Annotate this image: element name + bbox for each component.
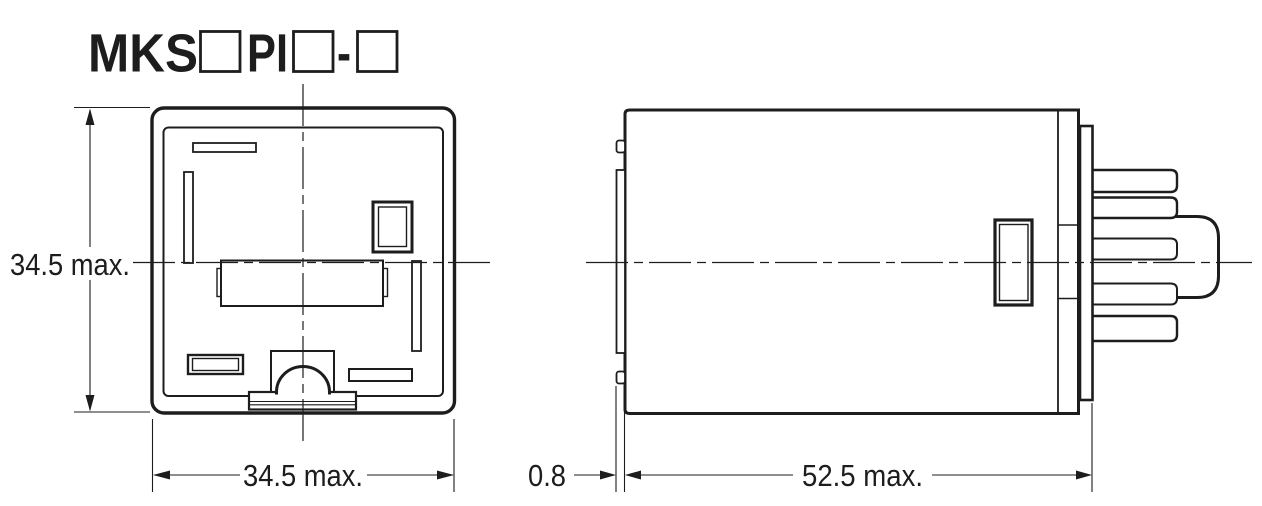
side-front-flange: [617, 170, 626, 353]
flange-dimension-label: 0.8: [528, 458, 566, 493]
height-dimension-label: 34.5 max.: [10, 247, 130, 282]
side-pin-2: [1092, 198, 1177, 219]
model-mid-text: PI: [247, 24, 288, 84]
front-height-dimension: 34.5 max.: [10, 108, 150, 413]
arrowhead-flange: [600, 471, 616, 480]
side-pin-5: [1092, 316, 1177, 341]
model-option-box-3: [358, 32, 398, 72]
model-option-box-2: [294, 32, 334, 72]
side-pin-1: [1092, 170, 1177, 192]
depth-dimension-label: 52.5 max.: [802, 458, 923, 493]
arrowhead-left: [153, 471, 170, 480]
width-dimension-label: 34.5 max.: [243, 458, 363, 493]
model-title: MKS PI -: [88, 24, 397, 84]
side-pin-3: [1092, 239, 1177, 260]
model-option-box-1: [201, 32, 241, 72]
arrowhead-depth-right: [1076, 471, 1092, 480]
front-view: [133, 84, 492, 441]
relay-dimension-drawing: MKS PI -: [0, 0, 1262, 506]
side-flange-bottom-tab: [617, 372, 626, 384]
arrowhead-up: [86, 109, 95, 126]
dimension-drawing-page: MKS PI -: [0, 0, 1262, 506]
side-depth-dimension: 52.5 max.: [625, 403, 1092, 493]
model-separator-text: -: [337, 24, 351, 84]
side-flange-top-tab: [617, 141, 626, 153]
side-view: [586, 110, 1252, 414]
side-pin-4: [1092, 284, 1177, 305]
arrowhead-right: [437, 471, 454, 480]
side-flange-dimension: 0.8: [528, 386, 625, 493]
front-label-plate: [221, 261, 383, 307]
arrowhead-depth-left: [625, 471, 641, 480]
model-prefix-text: MKS: [88, 24, 198, 84]
arrowhead-down: [86, 395, 95, 412]
